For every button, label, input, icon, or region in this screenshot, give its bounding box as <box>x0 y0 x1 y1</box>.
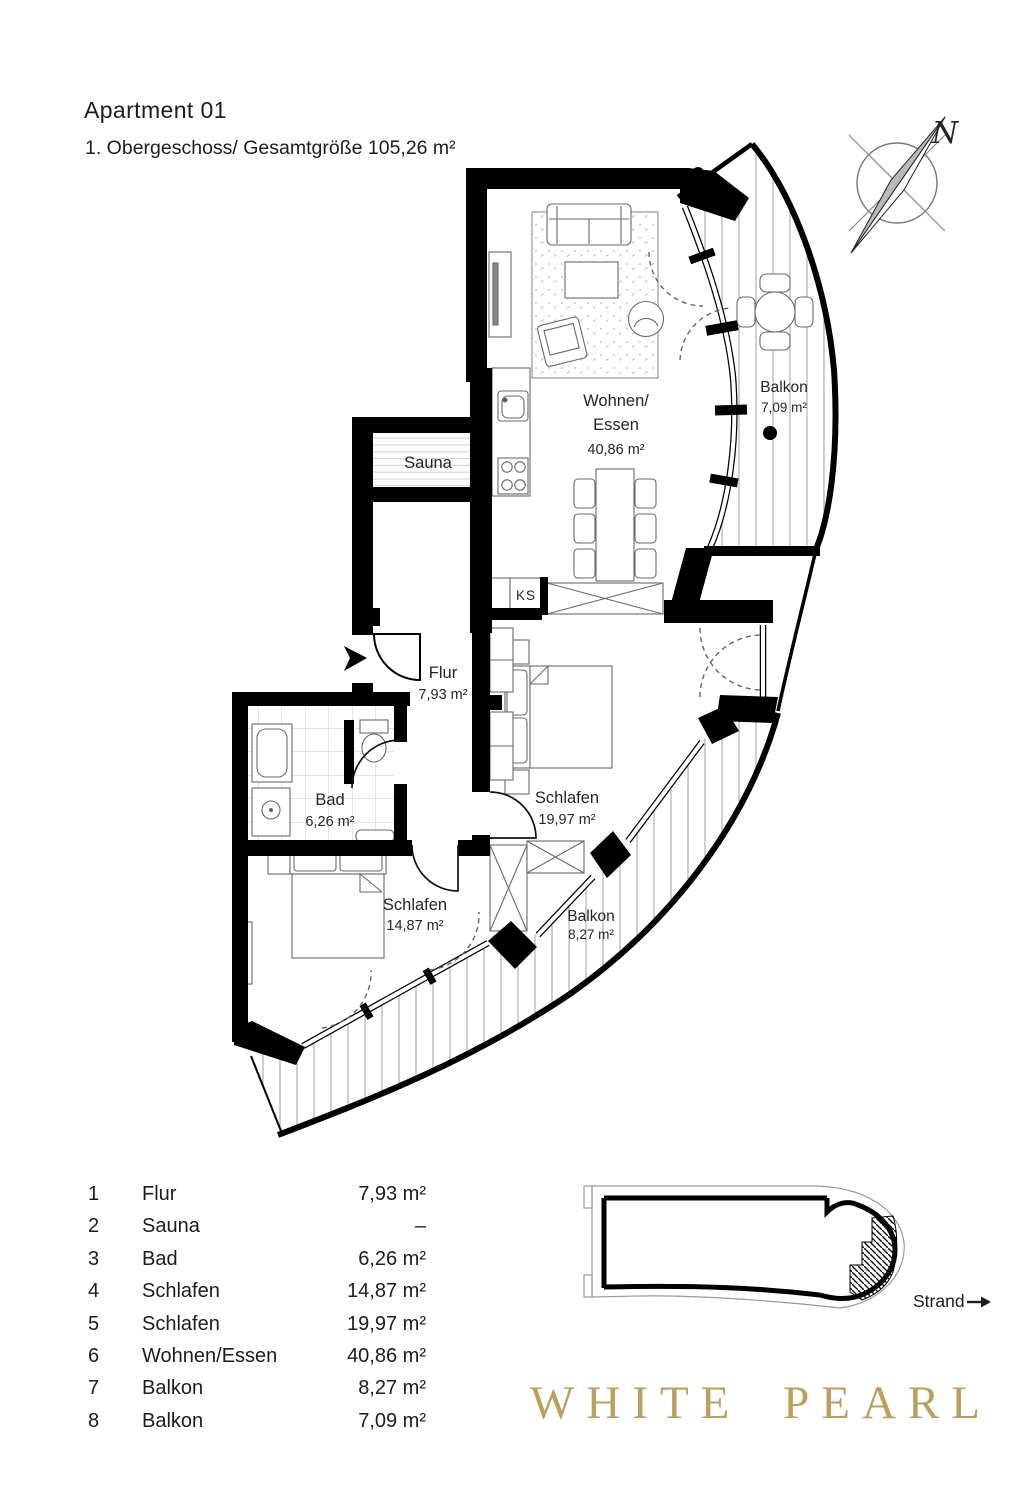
legend-area: 7,09 m² <box>308 1410 426 1433</box>
room-label-bad: Bad <box>315 791 344 809</box>
wardrobe-bedroom-horizontal <box>527 841 584 873</box>
lounge-chair <box>629 302 664 337</box>
room-area-bad: 6,26 m² <box>305 814 354 830</box>
legend-name: Wohnen/Essen <box>142 1345 308 1368</box>
legend-no: 3 <box>88 1248 142 1271</box>
entry-door <box>374 634 420 680</box>
room-area-schlafen-klein: 14,87 m² <box>386 918 443 934</box>
legend-row: 5Schlafen19,97 m² <box>88 1313 426 1345</box>
legend-area: 8,27 m² <box>308 1377 426 1400</box>
legend-no: 2 <box>88 1215 142 1238</box>
legend-row: 6Wohnen/Essen40,86 m² <box>88 1345 426 1377</box>
legend-area: 14,87 m² <box>308 1280 426 1303</box>
legend-row: 7Balkon8,27 m² <box>88 1377 426 1409</box>
legend-area: 19,97 m² <box>308 1313 426 1336</box>
legend-row: 2Sauna– <box>88 1215 426 1247</box>
legend-area: 40,86 m² <box>308 1345 426 1368</box>
fridge-label: KS <box>516 588 536 603</box>
room-area-balkon-unten: 8,27 m² <box>568 927 614 942</box>
room-area-balkon-oben: 7,09 m² <box>761 400 807 415</box>
sofa <box>547 204 631 245</box>
legend-no: 4 <box>88 1280 142 1303</box>
legend-row: 3Bad6,26 m² <box>88 1248 426 1280</box>
bedroom-small-door <box>412 845 458 891</box>
legend-name: Balkon <box>142 1377 308 1400</box>
legend-name: Schlafen <box>142 1280 308 1303</box>
coffee-table <box>565 262 618 298</box>
room-area-wohnen: 40,86 m² <box>587 442 644 458</box>
kitchen-counter <box>492 368 530 496</box>
legend-name: Balkon <box>142 1410 308 1433</box>
legend-row: 8Balkon7,09 m² <box>88 1410 426 1442</box>
room-label-balkon-oben: Balkon <box>760 379 807 396</box>
bathtub <box>252 724 292 782</box>
room-label-sauna: Sauna <box>404 454 453 472</box>
compass-north-label: N <box>931 116 960 151</box>
key-plan <box>584 1186 904 1308</box>
room-label-wohnen-line2: Essen <box>593 416 639 434</box>
legend-name: Schlafen <box>142 1313 308 1336</box>
room-label-balkon-unten: Balkon <box>567 908 614 925</box>
legend-no: 5 <box>88 1313 142 1336</box>
legend-no: 7 <box>88 1377 142 1400</box>
room-label-schlafen-klein: Schlafen <box>383 896 447 914</box>
legend-name: Flur <box>142 1183 308 1206</box>
washbasin <box>252 788 290 836</box>
strand-direction: Strand <box>913 1291 992 1312</box>
legend-no: 6 <box>88 1345 142 1368</box>
wardrobe-top <box>547 583 663 614</box>
bedroom-large-door <box>490 792 536 838</box>
floor-plan-page: Apartment 01 1. Obergeschoss/ Gesamtgröß… <box>0 0 1033 1500</box>
strand-arrow-icon <box>966 1295 992 1309</box>
legend-name: Sauna <box>142 1215 308 1238</box>
legend-row: 1Flur7,93 m² <box>88 1183 426 1215</box>
room-label-schlafen-gross: Schlafen <box>535 789 599 807</box>
legend-no: 1 <box>88 1183 142 1206</box>
room-label-flur: Flur <box>429 664 458 682</box>
legend-area: 7,93 m² <box>308 1183 426 1206</box>
legend-area: 6,26 m² <box>308 1248 426 1271</box>
legend-name: Bad <box>142 1248 308 1271</box>
key-plan-apartment-marker <box>850 1216 897 1300</box>
tv-sideboard <box>489 252 511 337</box>
wardrobe-bedroom-vertical <box>490 845 527 931</box>
room-label-wohnen-line1: Wohnen/ <box>583 392 649 410</box>
room-area-schlafen-gross: 19,97 m² <box>538 812 595 828</box>
strand-label: Strand <box>913 1291 965 1312</box>
brand-logo: WHITE PEARL <box>530 1376 992 1430</box>
legend-no: 8 <box>88 1410 142 1433</box>
legend-area: – <box>308 1215 426 1238</box>
bed-small <box>268 846 386 958</box>
compass: N <box>849 116 960 253</box>
room-legend: 1Flur7,93 m² 2Sauna– 3Bad6,26 m² 4Schlaf… <box>88 1183 426 1442</box>
room-area-flur: 7,93 m² <box>418 687 467 703</box>
bed-large <box>505 640 612 794</box>
dining-table-set <box>574 469 656 581</box>
legend-row: 4Schlafen14,87 m² <box>88 1280 426 1312</box>
